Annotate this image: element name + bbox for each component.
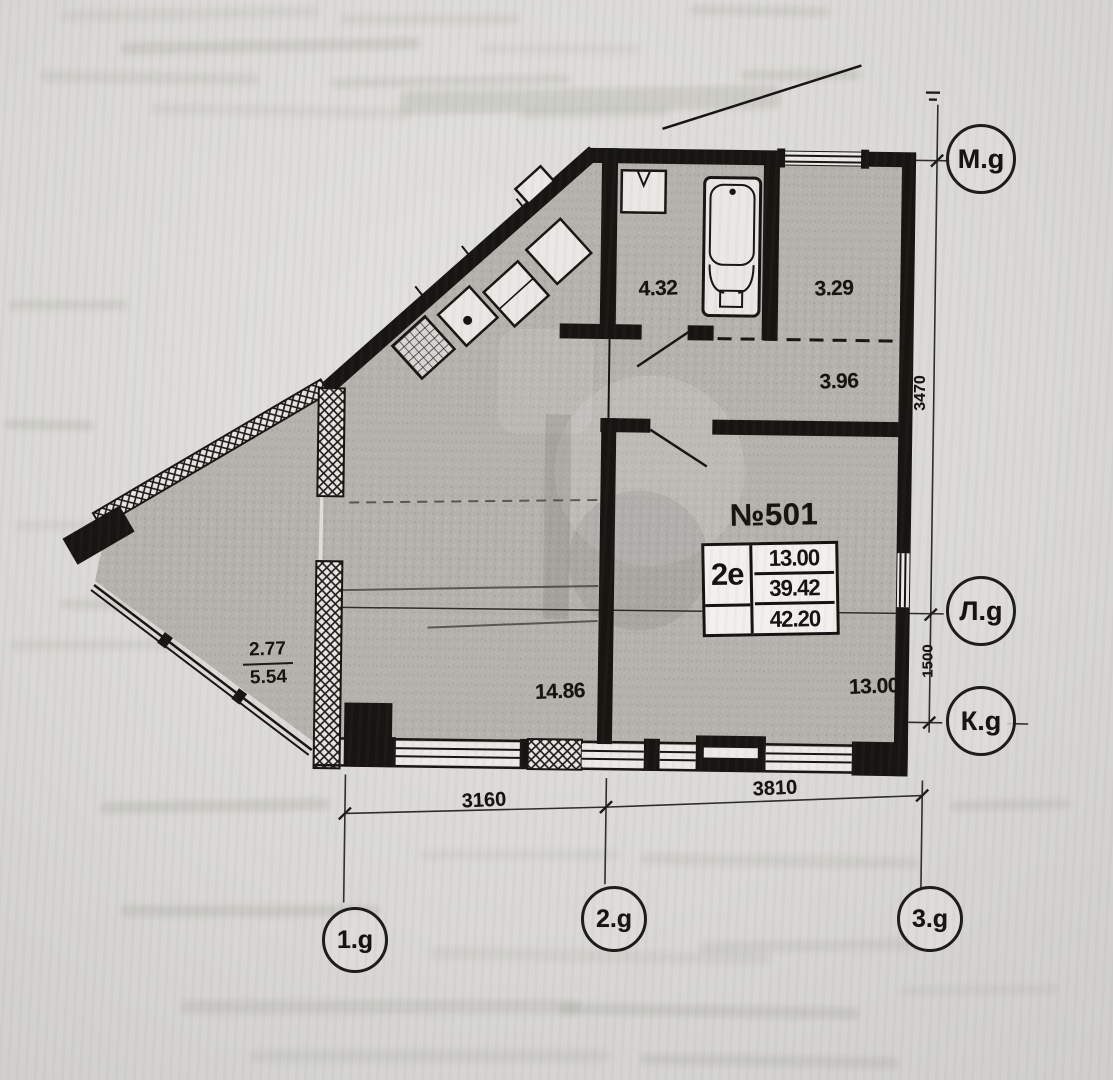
washbasin-icon [621,170,666,213]
window-living-2 [582,744,644,768]
dim-bottom-left: 3160 [461,789,506,814]
area-label-hall: 3.96 [819,369,859,394]
pier-bottom-left [344,702,393,767]
apartment-type: 2е [704,545,750,607]
balcony-area-full: 5.54 [239,666,298,690]
window-bedroom-2 [766,746,852,770]
balcony-partition-lower [314,561,343,768]
wall-bathroom-left [600,148,619,338]
wall-bathroom-bottom-a [560,323,642,339]
stamp-empty-cell [705,606,750,634]
axis-marker-mg: М.g [946,124,1016,194]
axis-marker-lg: Л.g [946,576,1016,646]
stamp-area-total: 42.20 [755,604,835,633]
balcony-area-reduced: 2.77 [238,638,297,662]
dim-right-upper: 3470 [912,375,930,411]
stamp-areas-column: 13.00 39.42 42.20 [749,544,837,633]
area-label-living: 14.86 [535,679,586,705]
apartment-stamp-table: 2е 13.00 39.42 42.20 [701,541,840,637]
wall-bathroom-bottom-b [688,325,714,340]
area-label-balcony: 2.77 5.54 [238,638,298,690]
bathtub-icon [703,177,761,316]
axis-marker-2g: 2.g [581,886,647,952]
apartment-number: №501 [730,496,819,534]
axis-marker-kg: К.g [946,686,1016,756]
scanned-floor-plan-page: 4.32 3.29 3.96 14.86 13.00 2.77 5.54 №50… [0,0,1113,1080]
dim-right-lower: 1500 [920,644,937,677]
axis-marker-3g: 3.g [897,886,963,952]
wall-hall-bottom [712,420,908,438]
stamp-area-reduced: 39.42 [754,574,834,605]
leader-line [662,63,861,132]
stamp-area-living: 13.00 [754,544,834,575]
axis-marker-1g: 1.g [322,907,388,973]
fraction-bar [243,662,293,666]
area-label-bedroom: 13.00 [849,674,900,700]
balcony-partition-upper [317,388,345,496]
window-bedroom-1 [660,745,696,769]
dim-bottom-right: 3810 [752,777,797,802]
stamp-type-column: 2е [704,545,751,634]
wall-bathroom-storage [762,152,781,340]
area-label-bathroom: 4.32 [638,276,678,301]
area-label-storage: 3.29 [814,276,854,301]
axis-line-right [929,105,938,733]
balcony-door-block [696,735,766,772]
bottom-pier-hatched [528,739,582,770]
open-plan-boundary [608,339,609,418]
window-right [897,553,910,607]
